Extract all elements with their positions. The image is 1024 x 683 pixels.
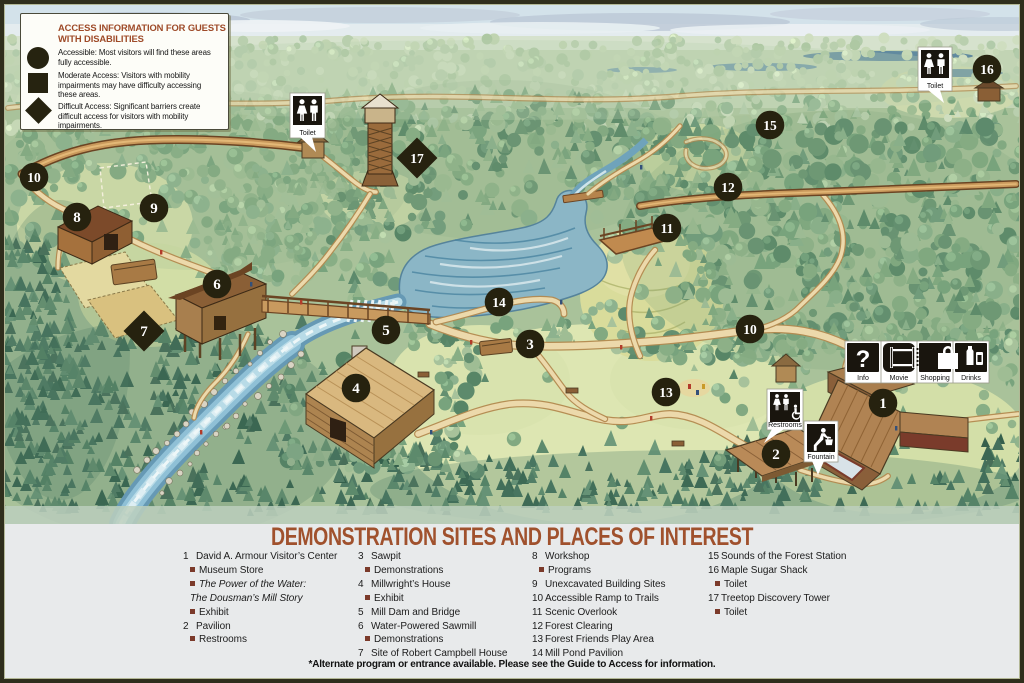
svg-text:?: ?	[856, 346, 871, 373]
svg-text:8: 8	[73, 210, 81, 226]
svg-text:6: 6	[213, 277, 221, 293]
svg-text:4: 4	[352, 381, 360, 397]
svg-text:14: 14	[492, 295, 506, 310]
svg-text:Shopping: Shopping	[920, 375, 950, 382]
svg-text:2: 2	[772, 447, 780, 463]
svg-text:10: 10	[743, 322, 757, 337]
svg-text:3: 3	[526, 337, 534, 353]
svg-text:15: 15	[763, 118, 777, 133]
svg-text:9: 9	[150, 201, 158, 217]
svg-text:Toilet: Toilet	[299, 130, 315, 137]
svg-text:11: 11	[661, 221, 674, 236]
svg-text:17: 17	[410, 151, 424, 166]
svg-text:5: 5	[382, 323, 390, 339]
svg-text:1: 1	[879, 396, 887, 412]
svg-text:7: 7	[140, 324, 148, 340]
svg-text:10: 10	[27, 170, 41, 185]
svg-text:Movie: Movie	[890, 375, 909, 382]
svg-text:Drinks: Drinks	[961, 375, 981, 382]
svg-text:Toilet: Toilet	[927, 83, 943, 90]
svg-text:12: 12	[721, 180, 735, 195]
svg-text:13: 13	[659, 385, 673, 400]
svg-text:Fountain: Fountain	[807, 454, 834, 461]
svg-text:Info: Info	[857, 375, 869, 382]
svg-text:Restrooms: Restrooms	[768, 422, 802, 429]
svg-text:16: 16	[980, 62, 994, 77]
